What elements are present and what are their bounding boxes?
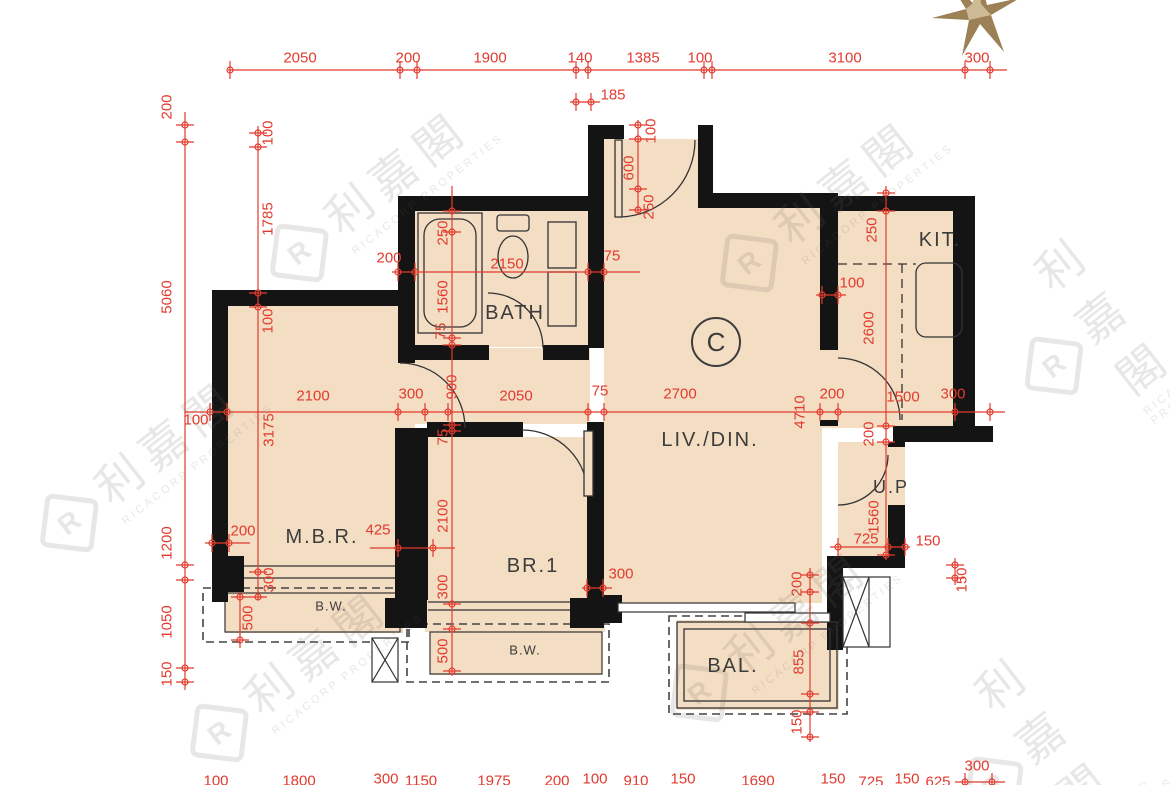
room-label-bath: BATH: [485, 303, 545, 323]
dim-label: 200: [819, 387, 844, 402]
dim-label: 75: [592, 384, 609, 399]
room-label-kit: KIT.: [919, 230, 961, 250]
floor-plan-canvas: R利嘉閣RICACORP PROPERTIESR利嘉閣RICACORP PROP…: [0, 0, 1170, 785]
dim-label: 1785: [261, 202, 276, 235]
dim-label: 300: [964, 51, 989, 66]
dim-label: 500: [436, 638, 451, 663]
dim-label: 100: [582, 772, 607, 785]
dim-label: 300: [436, 574, 451, 599]
dim-label: 300: [964, 759, 989, 774]
dim-label: 1900: [473, 51, 506, 66]
unit-letter-badge: C: [691, 317, 741, 367]
dim-label: 2150: [490, 257, 523, 272]
room-label-up: U.P: [873, 478, 909, 496]
dim-label: 1150: [405, 774, 437, 785]
dim-label: 3175: [262, 413, 277, 446]
dim-label: 1800: [282, 774, 315, 785]
dim-label: 425: [365, 523, 390, 538]
dim-label: 625: [925, 775, 950, 785]
dim-label: 150: [820, 772, 845, 785]
dim-label: 1690: [741, 774, 774, 785]
dim-label: 200: [544, 774, 569, 785]
dim-label: 100: [203, 774, 228, 785]
dim-label: 200: [862, 421, 877, 446]
dim-label: 300: [262, 567, 277, 592]
dim-label: 2050: [499, 389, 532, 404]
dim-label: 300: [398, 387, 423, 402]
room-label-mbr: M.B.R.: [285, 527, 358, 547]
dim-label: 150: [915, 534, 940, 549]
room-label-bw-br1: B.W.: [509, 644, 540, 657]
dim-label: 75: [436, 429, 451, 446]
dim-label: 150: [894, 772, 919, 785]
dim-label: 2600: [862, 311, 877, 344]
dim-label: 725: [853, 532, 878, 547]
dim-label: 200: [230, 524, 255, 539]
floor-plan-drawing: [0, 0, 1170, 785]
room-label-bal: BAL.: [707, 656, 758, 676]
dim-label: 250: [642, 194, 657, 219]
dim-label: 2050: [283, 51, 316, 66]
dim-label: 725: [858, 775, 883, 785]
dim-label: 2700: [663, 387, 696, 402]
dim-label: 2100: [436, 499, 451, 532]
dim-label: 1560: [867, 500, 882, 533]
dim-label: 4710: [793, 395, 808, 428]
dim-label: 100: [644, 118, 659, 143]
dim-label: 200: [160, 94, 175, 119]
dim-label: 150: [955, 567, 970, 592]
room-label-br1: BR.1: [507, 556, 559, 576]
dim-label: 2100: [296, 389, 329, 404]
room-label-bw-mbr: B.W.: [315, 600, 346, 613]
dim-label: 200: [376, 251, 401, 266]
dim-label: 300: [608, 567, 633, 582]
dim-label: 1975: [477, 774, 510, 785]
dim-label: 300: [940, 387, 965, 402]
dim-label: 150: [790, 709, 805, 734]
dim-label: 75: [604, 249, 621, 264]
dim-label: 300: [373, 772, 398, 785]
dim-label: 100: [261, 120, 276, 145]
dim-label: 1560: [436, 280, 451, 313]
dim-label: 1050: [160, 605, 175, 638]
dim-label: 3100: [828, 51, 861, 66]
dim-label: 1500: [886, 390, 919, 405]
dim-label: 185: [600, 88, 625, 103]
sliding-door: [618, 603, 830, 622]
dim-label: 5060: [160, 280, 175, 313]
dim-label: 1385: [626, 51, 659, 66]
dim-label: 140: [567, 51, 592, 66]
dim-label: 100: [183, 413, 208, 428]
dim-label: 100: [839, 276, 864, 291]
dim-label: 100: [261, 308, 276, 333]
dim-label: 250: [865, 217, 880, 242]
dim-label: 150: [160, 661, 175, 686]
dim-label: 100: [687, 51, 712, 66]
dim-label: 910: [623, 774, 648, 785]
dim-label: 1200: [160, 526, 175, 559]
dim-label: 900: [445, 374, 460, 399]
dim-label: 200: [790, 571, 805, 596]
dim-label: 150: [670, 772, 695, 785]
dim-label: 250: [436, 220, 451, 245]
br1-door-leaf: [584, 431, 593, 496]
dim-label: 200: [395, 51, 420, 66]
dim-label: 600: [622, 155, 637, 180]
dim-label: 75: [434, 323, 449, 340]
room-label-livdin: LIV./DIN.: [661, 430, 758, 450]
dim-label: 500: [241, 605, 256, 630]
compass-star: [932, 0, 1020, 56]
dim-label: 855: [792, 649, 807, 674]
